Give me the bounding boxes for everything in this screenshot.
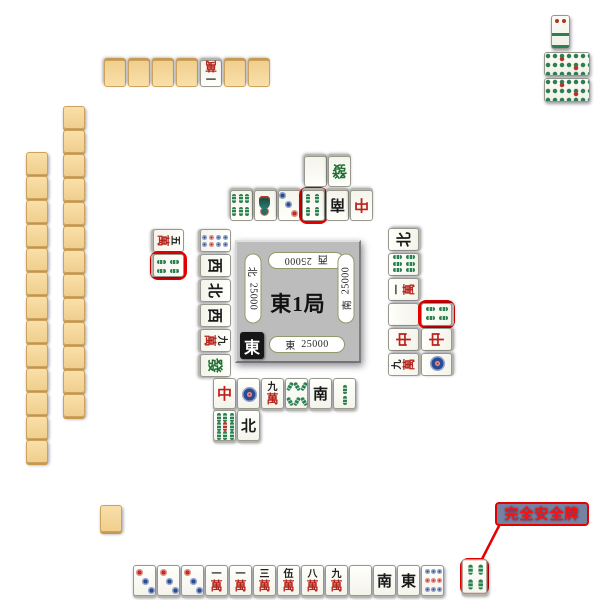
tile-pei: 北 [237, 410, 260, 441]
tile-5M: 五萬 [153, 229, 184, 252]
tile-back [26, 248, 48, 271]
tile-back [100, 505, 122, 532]
tile-back [104, 60, 126, 87]
tile-sha: 西 [200, 304, 231, 327]
tile-back [63, 298, 85, 321]
tile-back [63, 106, 85, 129]
discard-pile-top-row1: 南中 [230, 190, 373, 221]
round-info-panel: 東1局 西 25000 北 25000 南 25000 東 25000 東 [235, 240, 361, 363]
tile-4s [463, 561, 486, 592]
wind-west: 西 [318, 253, 328, 268]
tile-back [26, 152, 48, 175]
tile-back [26, 296, 48, 319]
tile-9m[interactable]: 九萬 [325, 565, 348, 596]
tile-back [224, 60, 246, 87]
tile-9m: 九萬 [200, 329, 231, 352]
score-pill-south: 南 25000 [338, 254, 355, 324]
score-west: 25000 [284, 255, 312, 266]
tile-4s [421, 303, 452, 326]
wind-south: 南 [339, 300, 354, 310]
tile-back [248, 60, 270, 87]
wind-north: 北 [246, 267, 261, 277]
tile-back [63, 322, 85, 345]
tile-3p[interactable] [157, 565, 180, 596]
tile-6s [388, 253, 419, 276]
tile-back [63, 346, 85, 369]
tile-haku [304, 156, 327, 187]
tile-back [63, 250, 85, 273]
tile-8m[interactable]: 八萬 [301, 565, 324, 596]
dead-wall-stack-1 [544, 52, 590, 76]
tile-5m[interactable]: 伍萬 [277, 565, 300, 596]
discard-pile-right-row2: 中 [421, 303, 452, 376]
wall-left-inner [63, 106, 85, 417]
tile-chun: 中 [213, 378, 236, 409]
tile-back [26, 344, 48, 367]
tile-1m: 一萬 [200, 60, 222, 87]
safe-tile-callout: 完全安全牌 [495, 502, 589, 526]
tile-back [63, 130, 85, 153]
discard-pile-left-row2: 五萬 [153, 229, 184, 277]
tile-1s [254, 190, 277, 221]
tile-nan: 南 [309, 378, 332, 409]
tile-4s [302, 190, 325, 221]
tile-3p[interactable] [133, 565, 156, 596]
discard-pile-left-row1: 西北西九萬發 [200, 229, 231, 377]
score-pill-east: 東 25000 [269, 336, 345, 353]
tile-1p [421, 353, 452, 376]
tile-chun: 中 [421, 328, 452, 351]
tile-hatsu: 發 [328, 156, 351, 187]
tile-3p [278, 190, 301, 221]
tile-back [152, 60, 174, 87]
tile-chun: 中 [388, 328, 419, 351]
tile-9m: 九萬 [388, 353, 419, 376]
tile-haku[interactable] [349, 565, 372, 596]
tile-back [63, 370, 85, 393]
tile-back [128, 60, 150, 87]
wind-east: 東 [285, 337, 295, 352]
score-north: 25000 [248, 283, 259, 311]
tile-haku [388, 303, 419, 326]
tile-back [63, 274, 85, 297]
tile-back [176, 60, 198, 87]
tile-back [26, 392, 48, 415]
tile-1p [237, 378, 260, 409]
tile-sha: 西 [200, 254, 231, 277]
tile-back [63, 154, 85, 177]
tile-back [26, 224, 48, 247]
tile-8p [200, 229, 231, 252]
discard-pile-bottom-row2: 北 [213, 410, 260, 441]
tile-6s [230, 190, 253, 221]
tile-back [26, 272, 48, 295]
wall-left-outer [26, 152, 48, 463]
tile-back [63, 202, 85, 225]
tile-back [26, 176, 48, 199]
score-east: 25000 [301, 339, 329, 350]
tile-9p[interactable] [421, 565, 444, 596]
wall-top-with-dora-indicator: 一萬 [104, 60, 270, 87]
tile-back [26, 368, 48, 391]
score-south: 25000 [341, 267, 352, 295]
tile-9s [213, 410, 236, 441]
tile-2s [333, 378, 356, 409]
tile-back [63, 226, 85, 249]
tile-back [26, 440, 48, 463]
mahjong-table: { "center": { "round": "東1局", "dealer_ma… [0, 0, 600, 600]
dealer-marker: 東 [240, 332, 264, 359]
tile-1m: 一萬 [388, 278, 419, 301]
dead-wall-stack-2 [544, 78, 590, 102]
tile-back [26, 200, 48, 223]
tile-8s [285, 378, 308, 409]
discard-pile-top-row2: 發 [304, 156, 351, 187]
tile-pei: 北 [388, 228, 419, 251]
tile-4s [153, 254, 184, 277]
safe-tile-display [463, 561, 486, 592]
tile-9m: 九萬 [261, 378, 284, 409]
tile-hatsu: 發 [200, 354, 231, 377]
tile-1m[interactable]: 一萬 [229, 565, 252, 596]
tile-chun: 中 [350, 190, 373, 221]
tile-back [26, 320, 48, 343]
tile-ton[interactable]: 東 [397, 565, 420, 596]
tile-back [26, 416, 48, 439]
discard-pile-right-row1: 北一萬中九萬 [388, 228, 419, 376]
dead-wall-stack-vertical [551, 15, 570, 49]
tile-1m[interactable]: 一萬 [205, 565, 228, 596]
tile-back [63, 394, 85, 417]
tile-nan: 南 [326, 190, 349, 221]
tile-back [63, 178, 85, 201]
tile-nan[interactable]: 南 [373, 565, 396, 596]
tile-3m[interactable]: 三萬 [253, 565, 276, 596]
wall-bottom-stub [100, 505, 122, 532]
score-pill-north: 北 25000 [245, 254, 262, 324]
tile-pei: 北 [200, 279, 231, 302]
player-hand: 一萬一萬三萬伍萬八萬九萬南東 [133, 565, 444, 596]
discard-pile-bottom-row1: 中九萬南 [213, 378, 356, 409]
score-pill-west: 西 25000 [268, 252, 344, 269]
tile-3p[interactable] [181, 565, 204, 596]
